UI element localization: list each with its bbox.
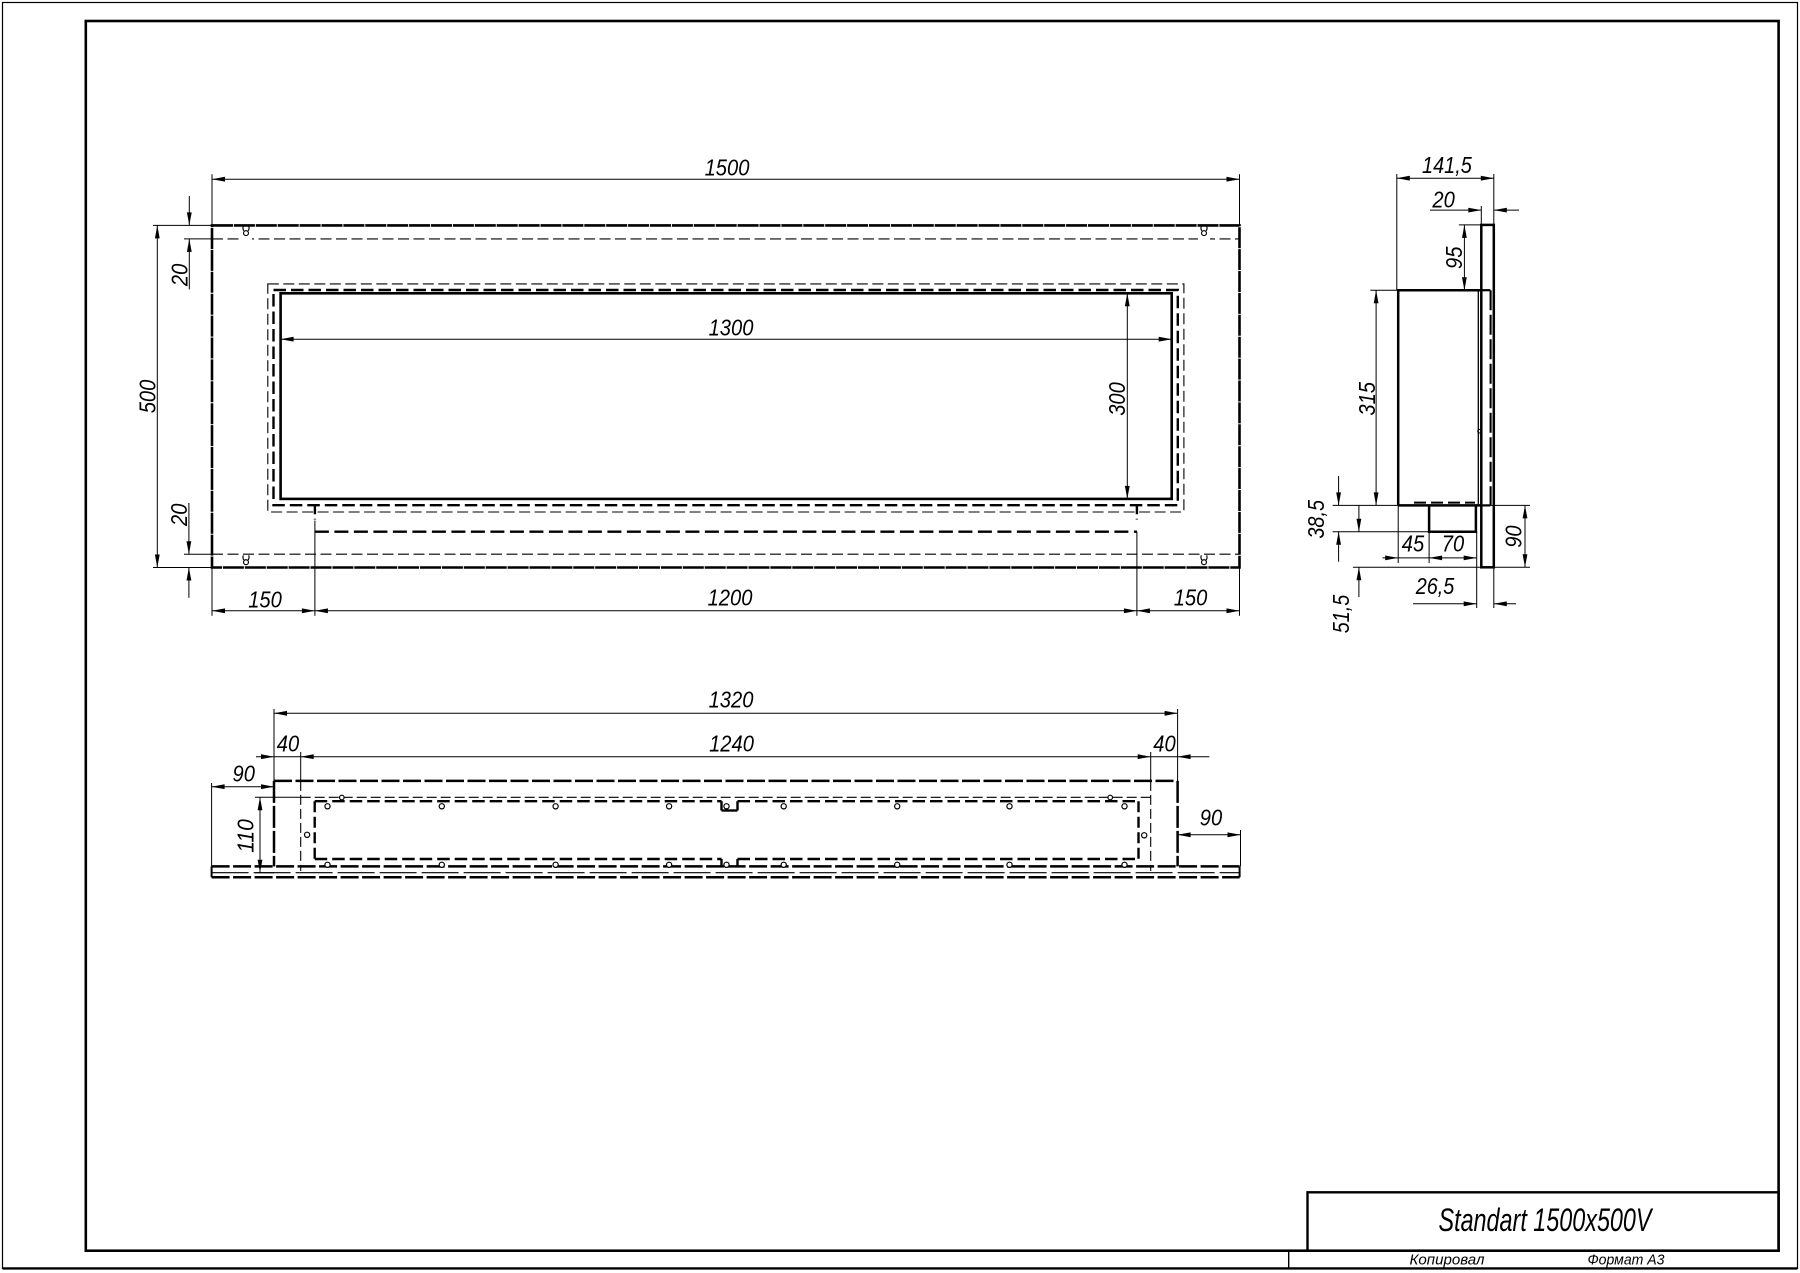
svg-text:500: 500 [134,380,160,414]
svg-text:1500: 1500 [705,155,750,181]
svg-text:70: 70 [1442,530,1465,556]
svg-text:45: 45 [1402,530,1425,556]
svg-text:20: 20 [166,503,192,526]
svg-text:40: 40 [277,731,300,757]
svg-text:38,5: 38,5 [1303,500,1329,539]
svg-text:110: 110 [233,819,259,853]
svg-text:40: 40 [1153,731,1176,757]
svg-text:1300: 1300 [709,314,754,340]
svg-text:51,5: 51,5 [1328,595,1354,634]
svg-text:Формат А3: Формат А3 [1588,1253,1665,1269]
svg-text:90: 90 [233,761,256,787]
svg-text:150: 150 [248,586,282,612]
svg-text:1200: 1200 [708,584,753,610]
svg-text:20: 20 [167,264,193,287]
svg-text:315: 315 [1354,382,1380,416]
svg-text:90: 90 [1501,525,1527,548]
svg-text:20: 20 [1432,187,1455,213]
svg-text:Standart 1500x500V: Standart 1500x500V [1439,1202,1654,1238]
svg-text:1320: 1320 [709,687,754,713]
svg-text:26,5: 26,5 [1415,573,1455,599]
svg-text:141,5: 141,5 [1422,152,1472,178]
svg-text:95: 95 [1441,246,1467,269]
svg-text:1240: 1240 [709,731,754,757]
svg-text:300: 300 [1104,382,1130,416]
svg-text:Копировал: Копировал [1410,1253,1485,1269]
svg-text:90: 90 [1200,805,1223,831]
svg-text:150: 150 [1174,584,1208,610]
